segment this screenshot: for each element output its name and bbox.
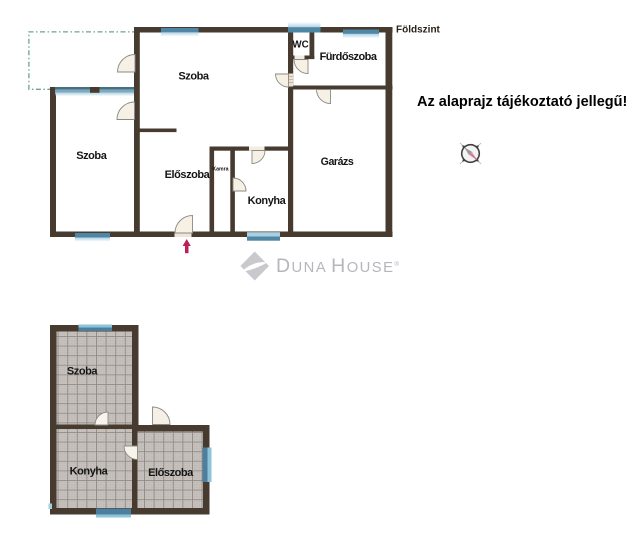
svg-text:Garázs: Garázs bbox=[321, 156, 354, 168]
svg-text:Fürdőszoba: Fürdőszoba bbox=[320, 51, 378, 63]
svg-text:Előszoba: Előszoba bbox=[148, 467, 194, 479]
svg-text:Konyha: Konyha bbox=[70, 466, 109, 478]
svg-text:Szoba: Szoba bbox=[67, 366, 98, 378]
svg-text:Előszoba: Előszoba bbox=[165, 169, 211, 181]
svg-text:Szoba: Szoba bbox=[178, 71, 209, 83]
svg-text:Földszint: Földszint bbox=[396, 25, 441, 36]
svg-text:Az alaprajz tájékoztató jelleg: Az alaprajz tájékoztató jellegű! bbox=[417, 94, 627, 110]
svg-text:Konyha: Konyha bbox=[248, 195, 287, 207]
svg-text:Szoba: Szoba bbox=[76, 150, 107, 162]
svg-text:Kamra: Kamra bbox=[212, 167, 228, 173]
svg-text:WC: WC bbox=[292, 40, 308, 51]
